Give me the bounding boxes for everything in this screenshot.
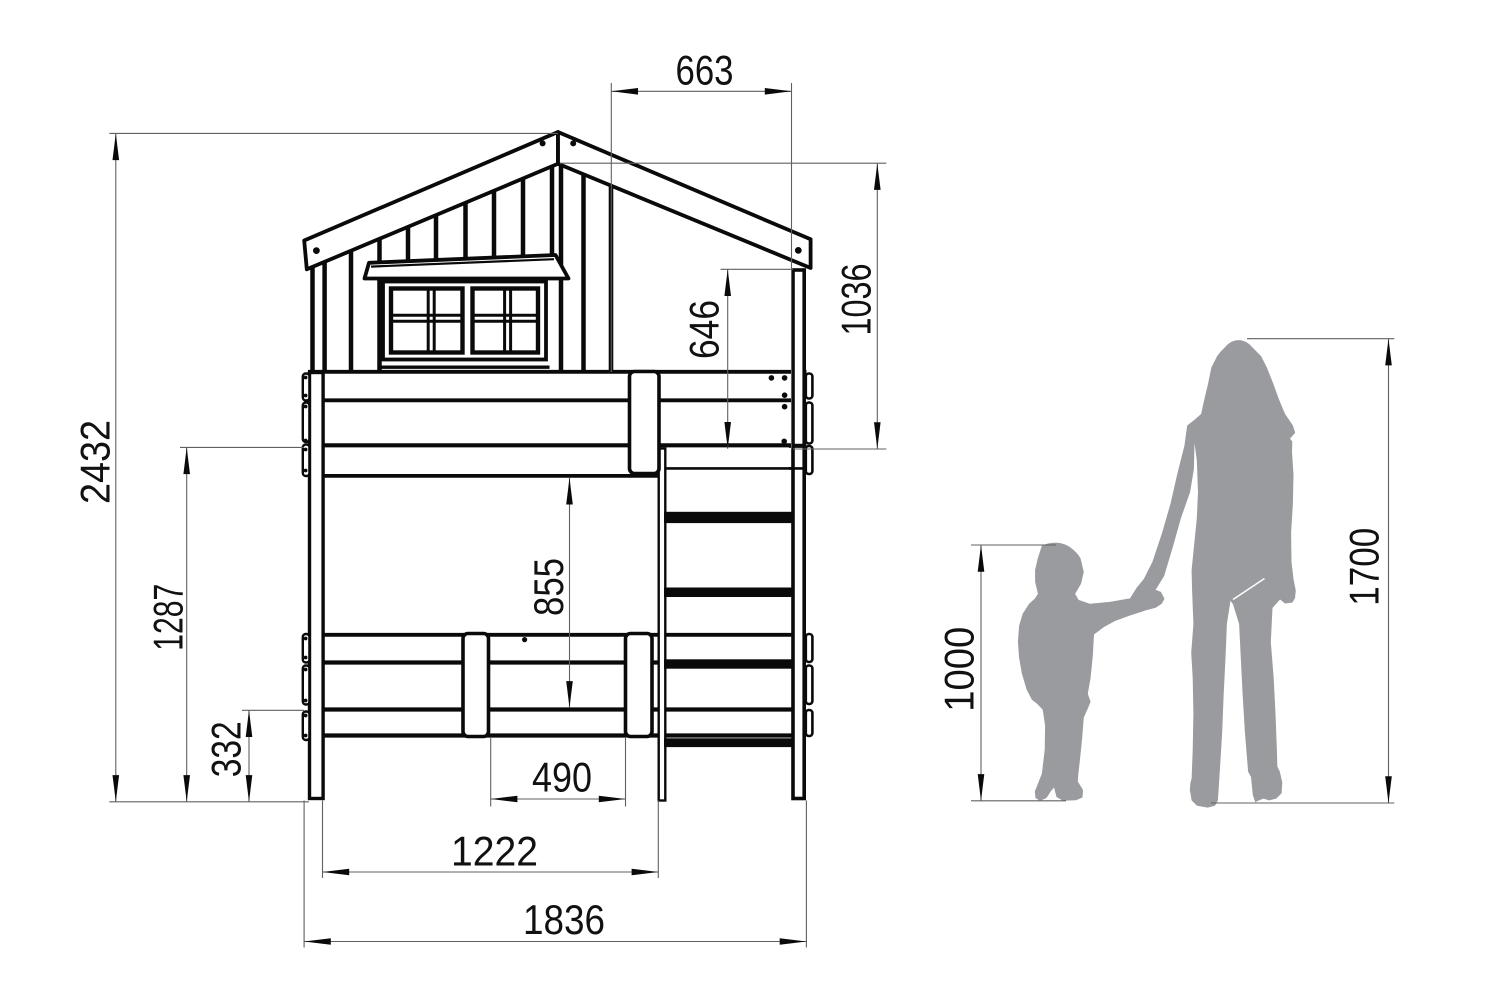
svg-text:1222: 1222	[451, 828, 538, 875]
svg-text:1700: 1700	[1340, 528, 1387, 606]
svg-text:1836: 1836	[523, 896, 605, 943]
svg-text:1036: 1036	[832, 264, 879, 336]
svg-text:1000: 1000	[935, 627, 982, 712]
svg-text:490: 490	[532, 753, 592, 800]
svg-text:2432: 2432	[71, 420, 118, 504]
svg-text:663: 663	[676, 47, 734, 94]
svg-text:855: 855	[525, 558, 572, 616]
svg-text:646: 646	[681, 300, 728, 359]
svg-text:332: 332	[202, 721, 249, 777]
svg-text:1287: 1287	[144, 584, 191, 651]
